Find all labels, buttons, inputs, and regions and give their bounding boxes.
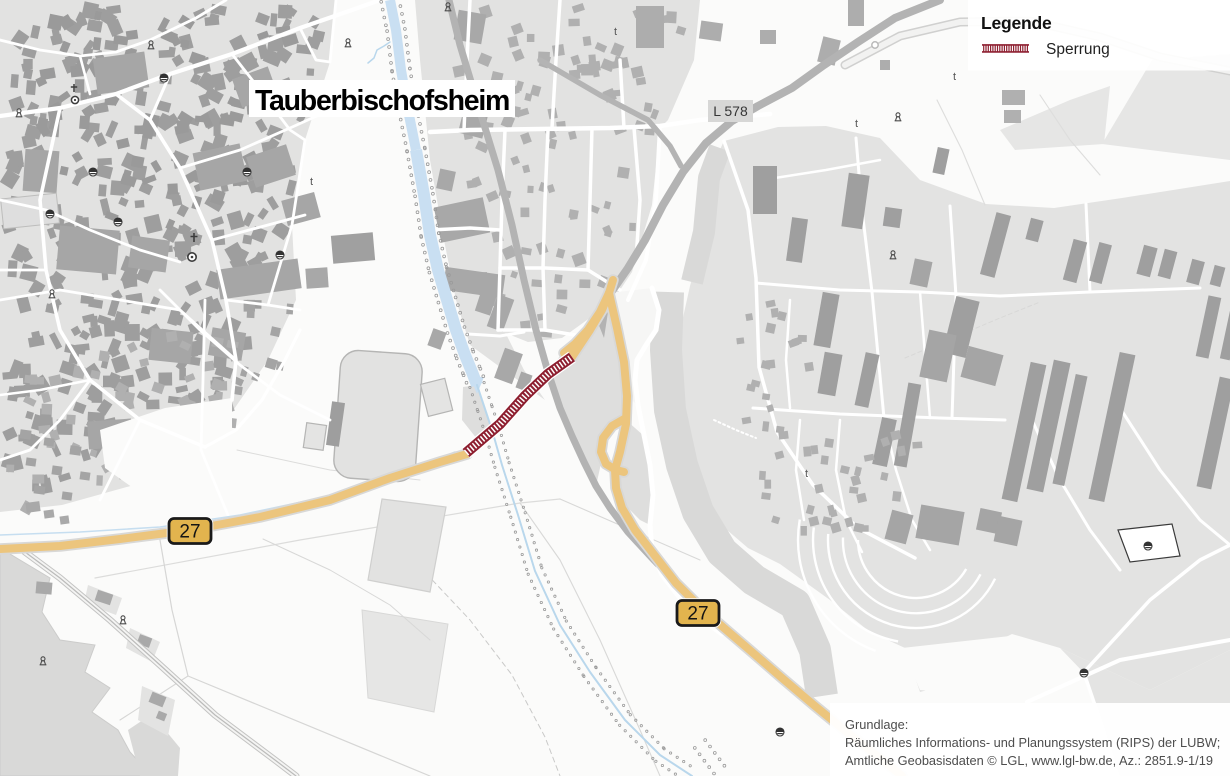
svg-text:27: 27	[179, 522, 200, 543]
svg-text:L 578: L 578	[713, 103, 748, 119]
svg-text:t: t	[614, 26, 617, 38]
svg-text:t: t	[805, 468, 808, 480]
svg-text:t: t	[855, 118, 858, 130]
svg-text:Legende: Legende	[981, 13, 1052, 33]
svg-text:27: 27	[687, 604, 708, 625]
svg-text:Sperrung: Sperrung	[1046, 41, 1110, 58]
svg-text:t: t	[310, 176, 313, 188]
svg-text:Tauberbischofsheim: Tauberbischofsheim	[255, 85, 509, 117]
svg-text:Räumliches Informations- und P: Räumliches Informations- und Planungssys…	[845, 735, 1220, 750]
svg-text:Amtliche Geobasisdaten © LGL,: Amtliche Geobasisdaten © LGL, www.lgl-bw…	[845, 753, 1213, 768]
svg-text:Grundlage:: Grundlage:	[845, 717, 908, 732]
svg-text:t: t	[953, 71, 956, 83]
